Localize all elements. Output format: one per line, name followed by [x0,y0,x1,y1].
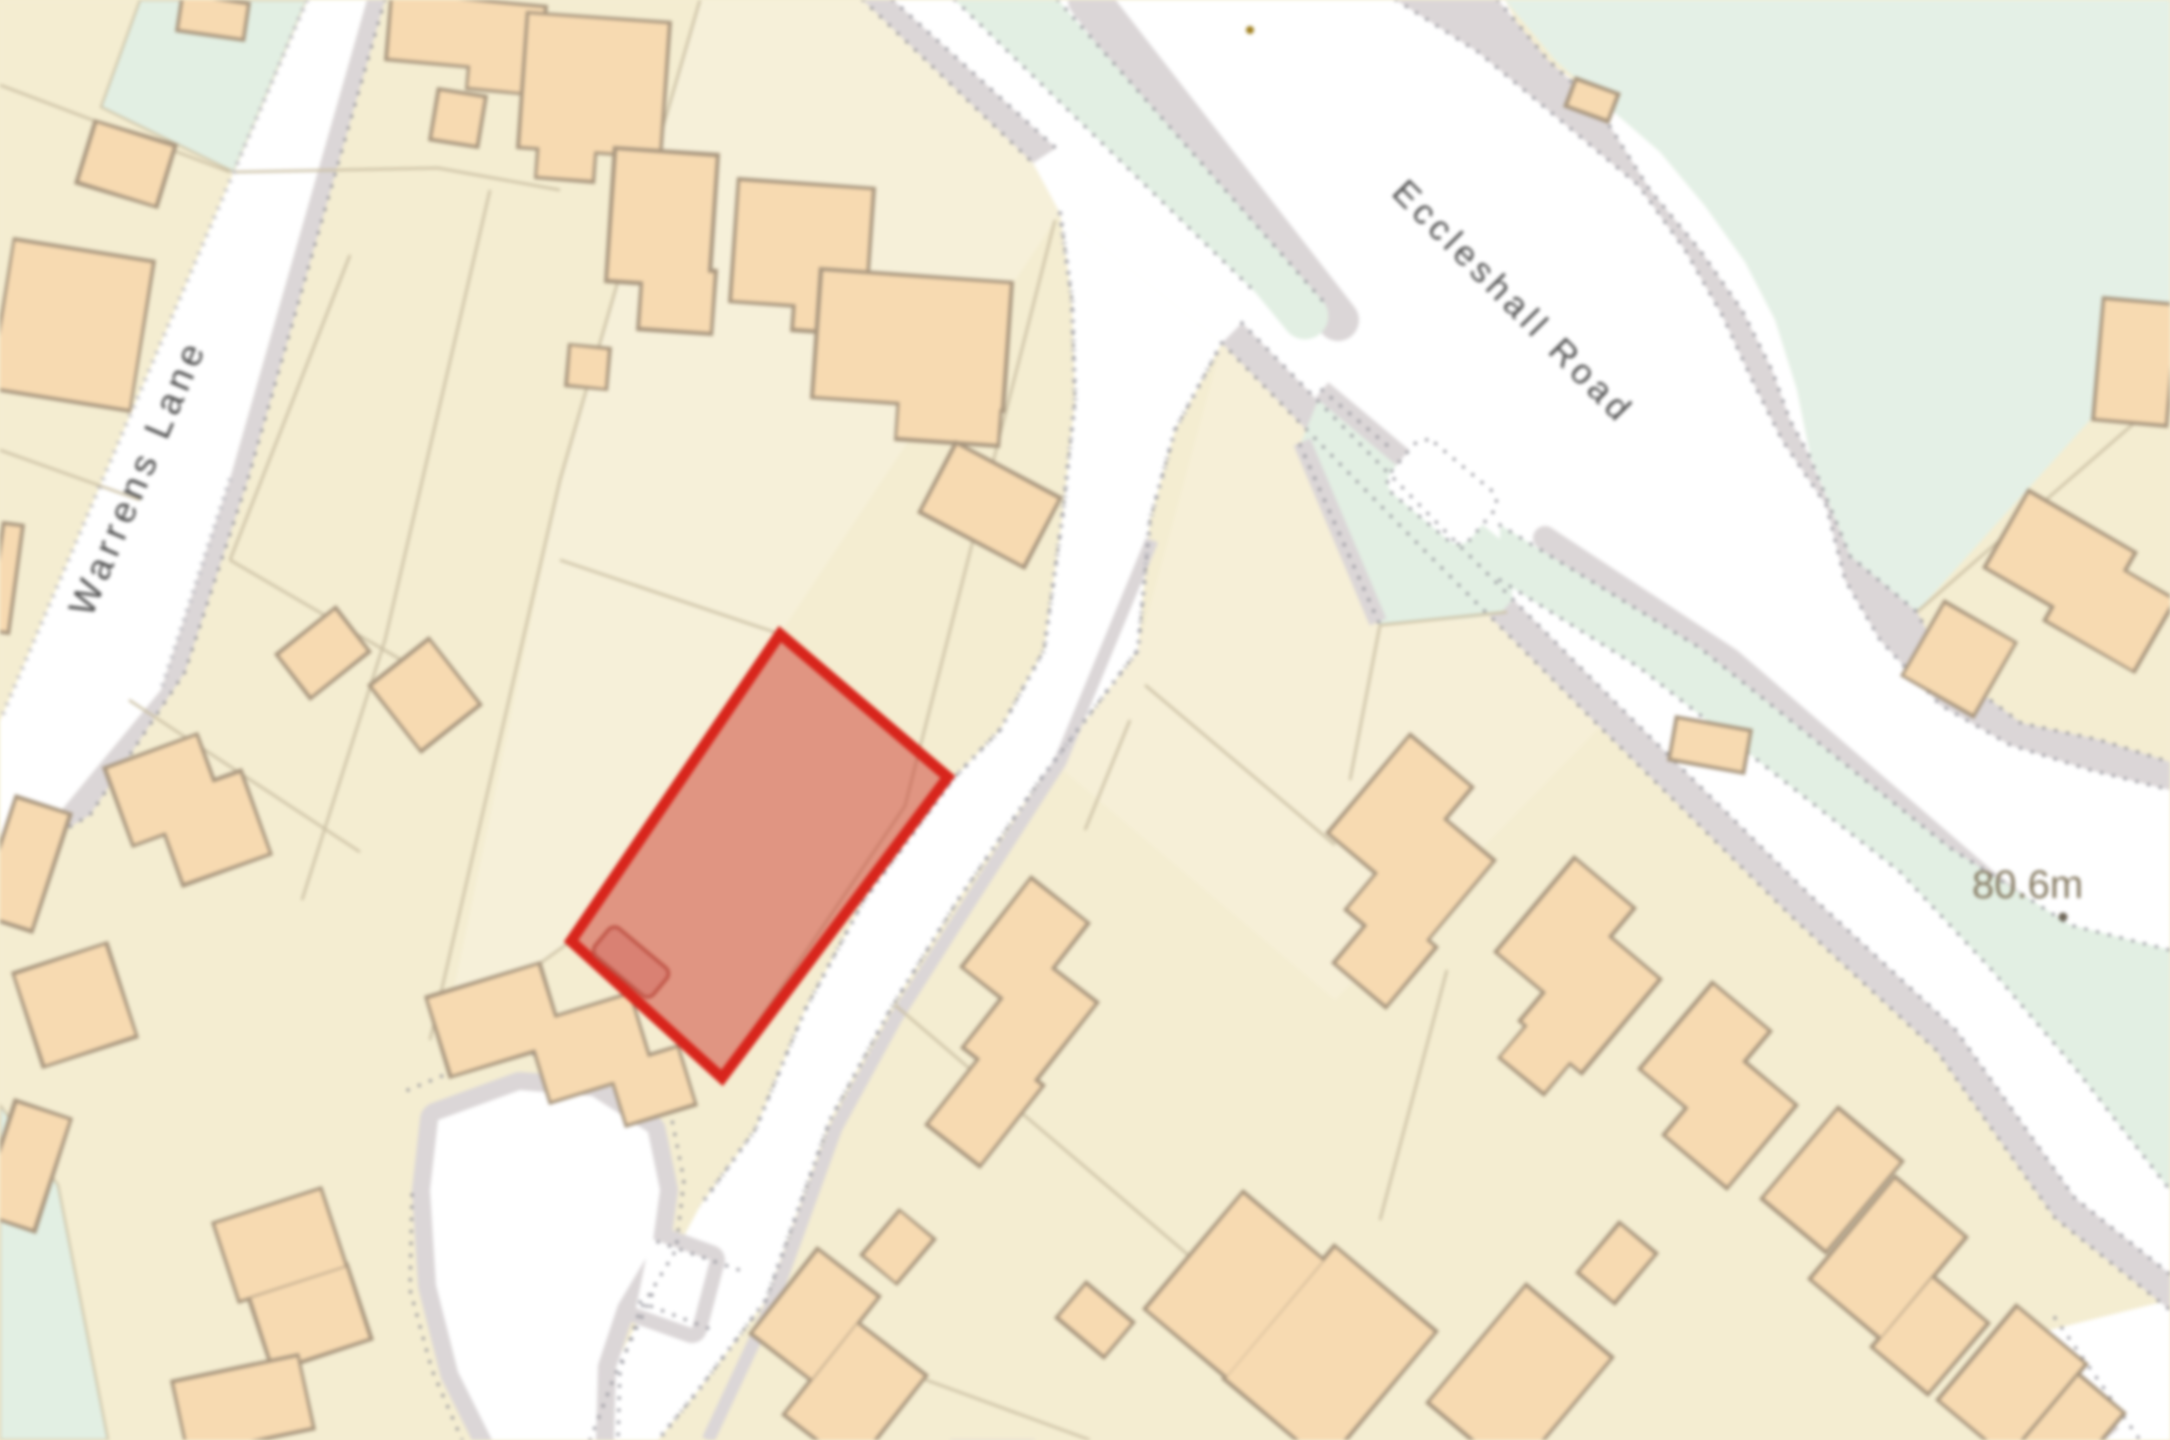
svg-text:80.6m: 80.6m [1972,863,2083,907]
